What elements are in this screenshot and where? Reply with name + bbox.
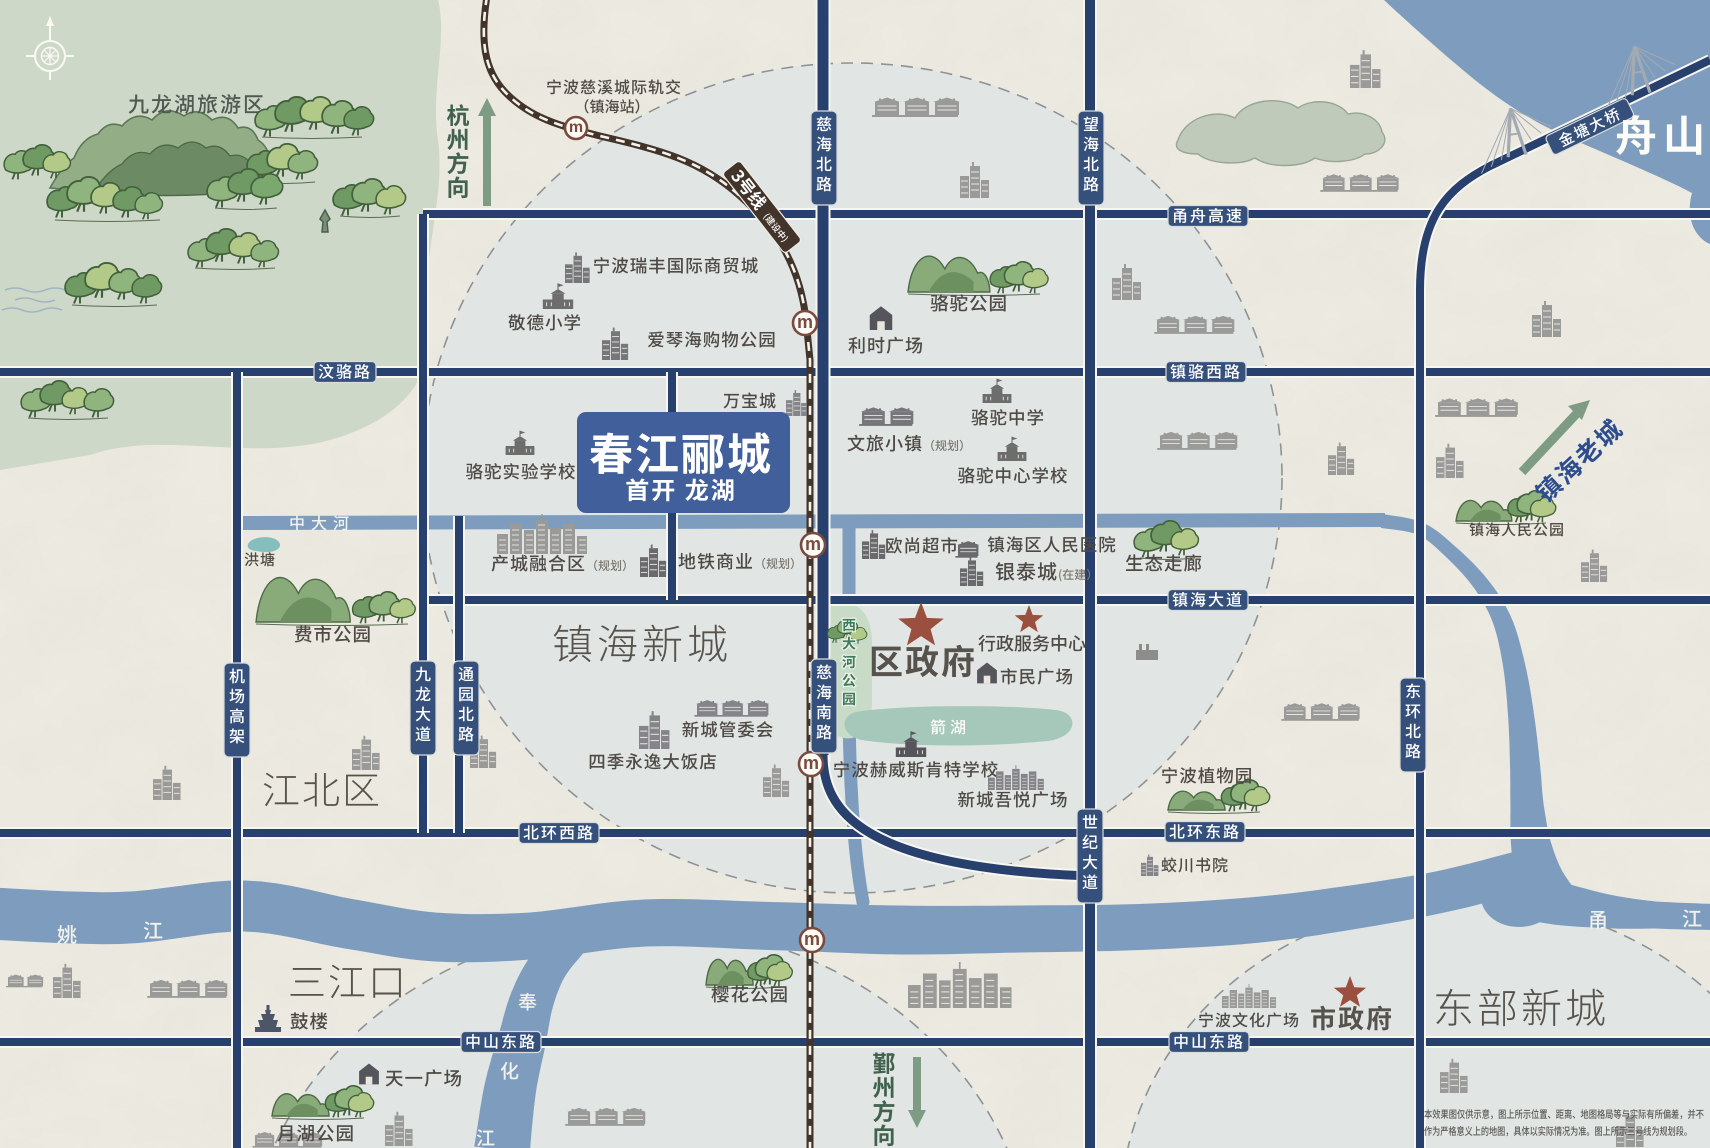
svg-text:作为严格意义上的地图，具体以实际情况为准。图上所示三号线为规: 作为严格意义上的地图，具体以实际情况为准。图上所示三号线为规划段。: [1424, 1124, 1692, 1139]
svg-text:甬: 甬: [1588, 904, 1608, 933]
svg-text:箭湖: 箭湖: [930, 714, 970, 738]
svg-text:（镇海站）: （镇海站）: [574, 96, 649, 117]
svg-text:洪塘: 洪塘: [244, 549, 276, 570]
svg-text:天一广场: 天一广场: [385, 1065, 463, 1091]
svg-text:新城管委会: 新城管委会: [682, 717, 775, 742]
svg-text:镇海人民公园: 镇海人民公园: [1469, 519, 1565, 540]
svg-text:奉: 奉: [518, 988, 537, 1015]
svg-text:m: m: [803, 753, 819, 773]
svg-text:月湖公园: 月湖公园: [277, 1120, 355, 1146]
svg-text:东部新城: 东部新城: [1433, 975, 1609, 1035]
svg-text:骆驼中学: 骆驼中学: [971, 405, 1045, 430]
svg-text:万宝城: 万宝城: [723, 387, 777, 412]
svg-text:宁波赫威斯肯特学校: 宁波赫威斯肯特学校: [833, 757, 1000, 782]
svg-text:九龙湖旅游区: 九龙湖旅游区: [128, 89, 266, 119]
svg-text:宁波瑞丰国际商贸城: 宁波瑞丰国际商贸城: [593, 253, 760, 278]
svg-text:世纪大道: 世纪大道: [1082, 809, 1098, 893]
svg-text:杭州方向: 杭州方向: [447, 97, 470, 203]
svg-text:四季永逸大饭店: 四季永逸大饭店: [588, 749, 718, 774]
svg-text:宁波慈溪城际轨交: 宁波慈溪城际轨交: [546, 74, 682, 98]
svg-text:蛟川书院: 蛟川书院: [1161, 852, 1229, 876]
svg-text:镇海新城: 镇海新城: [552, 611, 732, 671]
svg-text:宁波植物园: 宁波植物园: [1161, 763, 1254, 788]
svg-text:通园北路: 通园北路: [458, 661, 474, 745]
svg-text:镇骆西路: 镇骆西路: [1170, 359, 1242, 383]
svg-text:m: m: [805, 534, 821, 554]
svg-text:利时广场: 利时广场: [848, 332, 924, 358]
svg-text:m: m: [797, 312, 813, 332]
svg-text:m: m: [569, 119, 583, 136]
svg-text:慈海北路: 慈海北路: [816, 111, 832, 195]
svg-text:行政服务中心: 行政服务中心: [978, 630, 1086, 656]
svg-text:汶骆路: 汶骆路: [318, 359, 372, 383]
svg-text:欧尚超市: 欧尚超市: [885, 533, 959, 558]
svg-text:中山东路: 中山东路: [1173, 1029, 1245, 1053]
svg-text:首开 龙湖: 首开 龙湖: [625, 471, 736, 506]
svg-text:生态走廊: 生态走廊: [1125, 550, 1203, 576]
svg-text:鼓楼: 鼓楼: [290, 1008, 329, 1034]
svg-text:姚: 姚: [57, 919, 77, 948]
svg-text:中山东路: 中山东路: [465, 1029, 537, 1053]
svg-text:本效果图仅供示意，图上所示位置、距离、地图格局等与实际有所偏: 本效果图仅供示意，图上所示位置、距离、地图格局等与实际有所偏差，并不: [1424, 1107, 1704, 1122]
svg-text:九龙大道: 九龙大道: [415, 661, 431, 745]
svg-text:市民广场: 市民广场: [1000, 664, 1074, 689]
svg-text:西大河公园: 西大河公园: [842, 615, 856, 709]
svg-text:骆驼公园: 骆驼公园: [930, 290, 1008, 316]
svg-text:m: m: [804, 929, 820, 949]
svg-text:骆驼实验学校: 骆驼实验学校: [466, 459, 577, 484]
svg-text:甬舟高速: 甬舟高速: [1172, 203, 1244, 227]
svg-text:中大河: 中大河: [289, 510, 355, 534]
svg-text:新城吾悦广场: 新城吾悦广场: [958, 787, 1069, 812]
svg-text:望海北路: 望海北路: [1083, 111, 1099, 195]
svg-text:宁波文化广场: 宁波文化广场: [1198, 1007, 1300, 1031]
svg-text:机场高架: 机场高架: [229, 663, 245, 747]
svg-text:区政府: 区政府: [869, 635, 977, 684]
svg-text:东环北路: 东环北路: [1405, 678, 1421, 762]
svg-text:北环东路: 北环东路: [1169, 819, 1241, 843]
svg-text:化: 化: [500, 1057, 519, 1084]
svg-text:敬德小学: 敬德小学: [508, 310, 582, 335]
svg-text:慈海南路: 慈海南路: [816, 659, 832, 743]
svg-text:江北区: 江北区: [262, 760, 382, 815]
svg-text:费市公园: 费市公园: [294, 621, 372, 647]
svg-text:爱琴海购物公园: 爱琴海购物公园: [647, 327, 777, 352]
svg-text:三江口: 三江口: [288, 952, 408, 1007]
svg-text:舟山: 舟山: [1615, 103, 1710, 164]
svg-text:镇海大道: 镇海大道: [1172, 587, 1244, 611]
svg-text:北环西路: 北环西路: [523, 820, 595, 844]
svg-text:江: 江: [476, 1124, 495, 1148]
svg-text:骆驼中心学校: 骆驼中心学校: [958, 463, 1069, 488]
svg-text:镇海区人民医院: 镇海区人民医院: [987, 532, 1117, 557]
svg-text:樱花公园: 樱花公园: [711, 981, 789, 1007]
svg-text:江: 江: [1682, 903, 1702, 932]
svg-text:江: 江: [143, 915, 163, 944]
svg-text:鄞州方向: 鄞州方向: [873, 1045, 896, 1148]
svg-text:市政府: 市政府: [1310, 999, 1394, 1036]
